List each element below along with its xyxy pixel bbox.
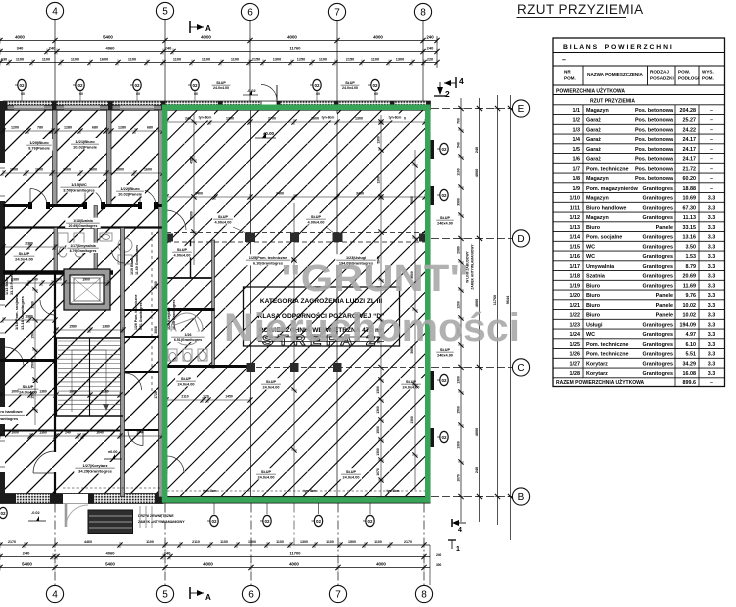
svg-text:1070: 1070 [376, 468, 380, 476]
svg-text:–: – [710, 157, 713, 163]
svg-text:1100: 1100 [128, 58, 136, 62]
svg-text:1280: 1280 [118, 126, 126, 130]
svg-text:1600: 1600 [35, 168, 43, 172]
svg-text:5960: 5960 [190, 211, 194, 219]
svg-text:02: 02 [192, 83, 198, 88]
svg-text:240: 240 [475, 147, 479, 153]
svg-text:540: 540 [457, 142, 461, 148]
svg-text:1/25: 1/25 [570, 342, 581, 348]
svg-text:1/15|WC: 1/15|WC [71, 182, 87, 187]
svg-text:2150: 2150 [346, 58, 354, 62]
svg-text:3.3: 3.3 [708, 322, 716, 328]
svg-text:1600: 1600 [144, 168, 152, 172]
svg-text:Panele: Panele [656, 225, 673, 231]
svg-text:Pos. betonowa: Pos. betonowa [635, 176, 674, 182]
svg-text:4: 4 [52, 589, 58, 600]
svg-text:1500: 1500 [31, 301, 35, 309]
svg-text:1100: 1100 [202, 58, 210, 62]
svg-text:Magazyn: Magazyn [586, 215, 609, 221]
svg-text:1/14: 1/14 [570, 235, 581, 241]
svg-text:Pos. betonowa: Pos. betonowa [635, 108, 674, 114]
svg-text:34.29: 34.29 [683, 361, 697, 367]
svg-text:POM.: POM. [702, 76, 714, 81]
svg-text:60: 60 [21, 92, 25, 96]
svg-text:02: 02 [316, 519, 322, 524]
svg-text:1/13 Biuro: 1/13 Biuro [5, 276, 9, 295]
svg-text:6.10|Granitogres: 6.10|Granitogres [253, 261, 283, 265]
svg-text:ZAMEK ANTYWŁAMANIOWY: ZAMEK ANTYWŁAMANIOWY [471, 244, 475, 290]
svg-text:300: 300 [436, 563, 442, 567]
svg-text:Korytarz: Korytarz [586, 361, 608, 367]
svg-text:4000: 4000 [203, 562, 213, 567]
svg-text:-0.02: -0.02 [247, 89, 256, 93]
svg-text:2360: 2360 [154, 281, 158, 289]
svg-text:1100: 1100 [146, 540, 154, 544]
svg-text:02: 02 [134, 83, 140, 88]
svg-text:B I L A N S P O W I E R Z C: B I L A N S P O W I E R Z C H N I [563, 44, 672, 51]
svg-text:1100: 1100 [173, 58, 181, 62]
svg-text:1580: 1580 [69, 325, 77, 329]
svg-text:Granitogres: Granitogres [642, 283, 673, 289]
svg-text:4000: 4000 [201, 35, 211, 40]
svg-text:3.50: 3.50 [686, 244, 697, 250]
svg-text:Szatnia: Szatnia [586, 274, 606, 280]
svg-text:WC: WC [586, 332, 595, 338]
svg-text:1/23: 1/23 [570, 322, 581, 328]
svg-text:Granitogres: Granitogres [642, 254, 673, 260]
svg-text:3.3: 3.3 [708, 332, 716, 338]
svg-text:RODZAJ: RODZAJ [650, 70, 669, 75]
svg-text:ZAMEK ANTYWŁAMANIOWY: ZAMEK ANTYWŁAMANIOWY [138, 520, 185, 524]
svg-text:8: 8 [421, 589, 427, 600]
svg-text:11.69: 11.69 [683, 283, 696, 289]
svg-text:4: 4 [52, 6, 58, 17]
svg-text:SŁUP: SŁUP [346, 470, 357, 474]
svg-text:1/16: 1/16 [570, 254, 581, 260]
svg-text:–: – [710, 176, 713, 182]
svg-text:1/8: 1/8 [573, 176, 581, 182]
svg-text:4000: 4000 [376, 562, 386, 567]
svg-text:4: 4 [458, 527, 462, 534]
svg-text:16.08: 16.08 [683, 371, 697, 377]
svg-text:1000: 1000 [10, 168, 18, 172]
svg-text:Pos. betonowa: Pos. betonowa [635, 137, 674, 143]
svg-text:3.3: 3.3 [708, 293, 716, 299]
svg-text:SŁUP: SŁUP [261, 470, 272, 474]
svg-text:1250: 1250 [297, 58, 305, 62]
svg-text:D: D [517, 234, 524, 245]
svg-text:60.20: 60.20 [683, 176, 697, 182]
svg-text:1300: 1300 [396, 58, 404, 62]
svg-text:3.3: 3.3 [708, 205, 716, 211]
svg-text:1/26: 1/26 [185, 333, 192, 337]
svg-text:–: – [710, 127, 713, 133]
svg-text:4000: 4000 [475, 428, 479, 436]
svg-text:11.69 Granitogres: 11.69 Granitogres [135, 245, 139, 275]
svg-text:2980: 2980 [457, 246, 461, 254]
svg-text:Magazyn: Magazyn [586, 196, 609, 202]
svg-text:02: 02 [441, 378, 447, 383]
svg-text:11.13: 11.13 [683, 215, 696, 221]
svg-text:700: 700 [457, 118, 461, 124]
svg-text:4000: 4000 [287, 35, 297, 40]
svg-text:4960: 4960 [106, 46, 116, 51]
svg-text:1/28: 1/28 [570, 371, 581, 377]
svg-text:Granitogres: Granitogres [642, 361, 673, 367]
svg-text:Panele: Panele [656, 303, 673, 309]
svg-text:1.53: 1.53 [686, 254, 697, 260]
svg-text:3.3: 3.3 [708, 196, 716, 202]
svg-text:Pos. betonowa: Pos. betonowa [635, 166, 674, 172]
svg-text:5: 5 [162, 6, 168, 17]
svg-text:NR: NR [564, 70, 571, 75]
svg-text:240: 240 [427, 46, 434, 51]
svg-text:204.28: 204.28 [680, 108, 697, 114]
svg-text:Garaż: Garaż [586, 147, 601, 153]
svg-text:60: 60 [374, 92, 378, 96]
svg-text:1500: 1500 [31, 331, 35, 339]
svg-text:7: 7 [335, 589, 341, 600]
svg-text:1280: 1280 [64, 126, 72, 130]
svg-text:Usługi: Usługi [586, 322, 603, 328]
svg-text:24.17: 24.17 [683, 137, 697, 143]
svg-text:5.51: 5.51 [686, 352, 697, 358]
svg-text:1300: 1300 [376, 406, 380, 414]
svg-text:1360: 1360 [39, 431, 47, 435]
svg-text:1/11 Biuro handlowe: 1/11 Biuro handlowe [0, 410, 23, 414]
svg-text:6: 6 [248, 589, 254, 600]
svg-text:Granitogres: Granitogres [642, 196, 673, 202]
svg-text:tyn. 8cm: tyn. 8cm [204, 489, 217, 493]
svg-text:1900: 1900 [82, 278, 90, 282]
svg-text:8.79: 8.79 [686, 264, 697, 270]
svg-text:SŁUP: SŁUP [345, 81, 355, 85]
svg-text:1/26 Pom. techniczne: 1/26 Pom. techniczne [134, 295, 138, 330]
svg-text:3.3: 3.3 [708, 313, 716, 319]
svg-text:1/7: 1/7 [573, 166, 581, 172]
svg-text:1100: 1100 [457, 168, 461, 175]
svg-text:24.0x4.00: 24.0x4.00 [263, 385, 280, 389]
svg-text:240: 240 [164, 551, 171, 556]
svg-text:1/18: 1/18 [570, 274, 581, 280]
svg-text:1/21|Biuro: 1/21|Biuro [75, 139, 95, 144]
svg-text:1/20|Biuro: 1/20|Biuro [29, 140, 49, 145]
svg-text:9.76|Panele: 9.76|Panele [28, 146, 51, 151]
svg-text:1720: 1720 [154, 391, 158, 399]
svg-text:RZUT PRZYZIEMIA: RZUT PRZYZIEMIA [590, 99, 635, 105]
svg-text:5400: 5400 [22, 562, 32, 567]
svg-text:POM.: POM. [564, 76, 576, 81]
svg-text:1200: 1200 [11, 126, 19, 130]
svg-text:24.0x4.00: 24.0x4.00 [15, 257, 34, 262]
svg-text:Granitogres: Granitogres [642, 264, 673, 270]
svg-text:1300: 1300 [376, 448, 380, 456]
svg-text:–: – [710, 147, 713, 153]
svg-text:24.17: 24.17 [683, 147, 697, 153]
svg-text:33.15 Panele: 33.15 Panele [10, 272, 14, 295]
svg-text:20.69: 20.69 [683, 274, 697, 280]
svg-text:10.69: 10.69 [683, 196, 697, 202]
svg-text:2600: 2600 [311, 117, 319, 121]
svg-text:24.0x4.00: 24.0x4.00 [342, 86, 358, 90]
svg-text:24.22: 24.22 [683, 127, 697, 133]
svg-text:220: 220 [427, 58, 433, 62]
svg-text:240: 240 [185, 117, 191, 121]
svg-text:1300: 1300 [226, 117, 234, 121]
svg-text:Pom. socjalne: Pom. socjalne [586, 235, 622, 241]
svg-text:PODŁOGI: PODŁOGI [678, 76, 699, 81]
svg-text:Umywalnia: Umywalnia [586, 264, 615, 270]
svg-text:680: 680 [147, 126, 153, 130]
svg-text:1/22|Biuro: 1/22|Biuro [120, 186, 140, 191]
svg-text:POW.: POW. [678, 70, 690, 75]
svg-text:1/2: 1/2 [573, 118, 581, 124]
svg-text:1/27|Korytarz: 1/27|Korytarz [82, 463, 107, 468]
svg-text:Pom. techniczne: Pom. techniczne [586, 166, 629, 172]
svg-text:240: 240 [475, 467, 479, 473]
svg-text:4000: 4000 [475, 169, 479, 177]
svg-text:240: 240 [23, 551, 30, 556]
svg-text:–: – [710, 166, 713, 172]
svg-text:10.02: 10.02 [683, 313, 697, 319]
svg-text:1100: 1100 [42, 58, 50, 62]
svg-text:3.3: 3.3 [708, 254, 716, 260]
svg-text:60: 60 [316, 92, 320, 96]
svg-text:2150: 2150 [252, 58, 260, 62]
svg-text:RZUT PRZYZIEMIA: RZUT PRZYZIEMIA [517, 2, 644, 17]
svg-text:1000: 1000 [11, 431, 19, 435]
svg-text:Biuro: Biuro [586, 225, 601, 231]
svg-text:11700: 11700 [290, 551, 302, 556]
svg-text:340: 340 [17, 46, 24, 51]
svg-text:SŁUP: SŁUP [440, 216, 451, 220]
svg-text:Panele: Panele [656, 313, 673, 319]
svg-text:5400: 5400 [105, 562, 115, 567]
svg-text:1180: 1180 [101, 390, 108, 394]
svg-text:1/5: 1/5 [573, 147, 581, 153]
svg-text:–: – [710, 108, 713, 114]
svg-text:1300: 1300 [355, 117, 363, 121]
svg-text:4.00x4.00: 4.00x4.00 [174, 253, 191, 257]
svg-text:A: A [205, 593, 211, 602]
svg-text:1/19 Biuro: 1/19 Biuro [130, 257, 134, 275]
svg-text:9644: 9644 [506, 295, 510, 304]
svg-text:21.72: 21.72 [683, 166, 697, 172]
svg-text:02: 02 [441, 435, 447, 440]
svg-text:1600: 1600 [100, 58, 108, 62]
svg-text:1100: 1100 [231, 58, 239, 62]
svg-text:60: 60 [194, 92, 198, 96]
svg-text:Magazyn: Magazyn [586, 108, 609, 114]
svg-text:Pos. betonowa: Pos. betonowa [635, 118, 674, 124]
svg-text:Garaż: Garaż [586, 118, 601, 124]
svg-text:5: 5 [162, 589, 168, 600]
svg-text:Magazyn: Magazyn [586, 176, 609, 182]
svg-text:13.16: 13.16 [683, 235, 697, 241]
svg-text:4: 4 [459, 76, 464, 86]
svg-text:4555: 4555 [190, 156, 194, 164]
svg-text:Panele: Panele [656, 293, 673, 299]
svg-text:2: 2 [445, 89, 450, 99]
svg-text:5955: 5955 [410, 196, 414, 204]
svg-text:1: 1 [456, 546, 460, 553]
svg-text:Pos. betonowa: Pos. betonowa [635, 157, 674, 163]
svg-text:Pom. techniczne: Pom. techniczne [586, 342, 629, 348]
svg-text:Granitogres: Granitogres [642, 322, 673, 328]
svg-text:1/21: 1/21 [570, 303, 581, 309]
svg-text:240: 240 [436, 553, 442, 557]
svg-text:1300: 1300 [273, 58, 281, 62]
svg-text:1/27: 1/27 [570, 361, 581, 367]
svg-text:1100: 1100 [374, 540, 382, 544]
svg-text:Granitogres: Granitogres [642, 371, 673, 377]
svg-text:1100: 1100 [276, 540, 284, 544]
svg-text:1300: 1300 [410, 416, 414, 424]
svg-text:1/17: 1/17 [570, 264, 581, 270]
svg-text:Pos. betonowa: Pos. betonowa [635, 147, 674, 153]
svg-text:3.3: 3.3 [708, 235, 716, 241]
svg-text:Biuro: Biuro [586, 313, 601, 319]
svg-text:7: 7 [334, 7, 340, 18]
svg-text:3.3: 3.3 [708, 264, 716, 270]
svg-text:24.0x4.00: 24.0x4.00 [258, 475, 275, 479]
svg-text:1300: 1300 [377, 176, 381, 184]
svg-text:1/28 Korytarz: 1/28 Korytarz [167, 307, 171, 330]
svg-text:Pom. magazynierów: Pom. magazynierów [586, 186, 639, 192]
svg-text:1/1: 1/1 [573, 108, 581, 114]
svg-text:B: B [518, 492, 525, 503]
svg-text:02: 02 [441, 193, 447, 198]
svg-text:1/9: 1/9 [573, 186, 581, 192]
svg-text:18.88: 18.88 [683, 186, 697, 192]
svg-text:5400: 5400 [103, 35, 113, 40]
svg-text:4000: 4000 [289, 562, 299, 567]
svg-text:4000: 4000 [15, 35, 25, 40]
svg-text:1000: 1000 [116, 168, 124, 172]
svg-text:1300: 1300 [457, 376, 461, 384]
svg-text:24.0x4.00: 24.0x4.00 [343, 475, 360, 479]
svg-text:Granitogres: Granitogres [642, 332, 673, 338]
svg-text:3.3: 3.3 [708, 244, 716, 250]
svg-text:POWIERZCHNIA UŻYTKOWA: POWIERZCHNIA UŻYTKOWA [556, 87, 625, 94]
svg-text:SŁUP: SŁUP [266, 380, 277, 384]
svg-text:NAZWA POMIESZCZENIA: NAZWA POMIESZCZENIA [587, 72, 643, 77]
svg-text:Granitogres: Granitogres [642, 274, 673, 280]
svg-text:SŁUP: SŁUP [19, 251, 30, 256]
svg-text:E: E [518, 104, 525, 115]
svg-text:1100: 1100 [16, 58, 24, 62]
svg-text:2170: 2170 [404, 540, 412, 544]
svg-text:60: 60 [79, 92, 83, 96]
svg-text:1/6: 1/6 [573, 157, 581, 163]
svg-text:8.79|Granitogres: 8.79|Granitogres [70, 249, 97, 253]
svg-text:02: 02 [0, 511, 6, 516]
svg-text:6.51|Granitogres: 6.51|Granitogres [174, 338, 202, 342]
svg-text:Granitogres: Granitogres [642, 205, 673, 211]
svg-text:5.51 Granitogres: 5.51 Granitogres [139, 302, 143, 330]
svg-text:1300: 1300 [376, 386, 380, 394]
svg-text:1500: 1500 [31, 361, 35, 369]
svg-text:Granitogres: Granitogres [642, 352, 673, 358]
svg-text:Granitogres: Granitogres [642, 215, 673, 221]
svg-text:8: 8 [420, 7, 426, 18]
svg-text:1/19: 1/19 [570, 283, 581, 289]
svg-text:10.02|Panele: 10.02|Panele [73, 145, 98, 150]
svg-text:1/20: 1/20 [570, 293, 581, 299]
svg-text:02: 02 [77, 83, 83, 88]
svg-text:240: 240 [65, 431, 71, 435]
svg-text:-0.02: -0.02 [31, 511, 40, 515]
svg-text:SŁUP: SŁUP [218, 215, 229, 219]
svg-text:"GRUNT": "GRUNT" [281, 258, 469, 300]
svg-text:Biuro: Biuro [586, 303, 601, 309]
svg-text:02: 02 [372, 83, 378, 88]
svg-text:SŁUP: SŁUP [311, 215, 322, 219]
svg-text:1/12: 1/12 [570, 215, 581, 221]
svg-text:9.76: 9.76 [686, 293, 697, 299]
svg-text:3.50|Granitogres: 3.50|Granitogres [63, 188, 95, 193]
svg-text:C: C [517, 363, 524, 374]
svg-text:13.16 Granitogres: 13.16 Granitogres [20, 295, 25, 330]
svg-text:3.3: 3.3 [708, 283, 716, 289]
svg-text:Garaż: Garaż [586, 137, 601, 143]
svg-text:25.27: 25.27 [683, 118, 697, 124]
svg-text:2700: 2700 [268, 117, 276, 121]
svg-text:1360: 1360 [39, 390, 47, 394]
svg-text:Biuro: Biuro [586, 293, 601, 299]
svg-text:±0.00: ±0.00 [263, 131, 275, 136]
svg-text:RAZEM POWIERZCHNIA UŻYTKOWA: RAZEM POWIERZCHNIA UŻYTKOWA [556, 379, 645, 386]
svg-text:WC: WC [586, 254, 595, 260]
svg-text:2170: 2170 [8, 540, 16, 544]
svg-text:02: 02 [314, 83, 320, 88]
svg-text:60: 60 [136, 92, 140, 96]
svg-text:120: 120 [203, 395, 209, 399]
svg-text:1/15: 1/15 [570, 244, 581, 250]
svg-text:2380: 2380 [25, 242, 33, 246]
svg-text:–: – [710, 137, 713, 143]
svg-text:WYS.: WYS. [702, 70, 714, 75]
svg-text:–: – [710, 118, 713, 124]
svg-text:10.02|Panele: 10.02|Panele [118, 192, 143, 197]
svg-text:1100: 1100 [326, 540, 334, 544]
svg-text:24.17: 24.17 [683, 157, 697, 163]
svg-text:1070: 1070 [457, 474, 461, 482]
svg-text:02: 02 [19, 83, 25, 88]
svg-text:4460: 4460 [84, 540, 92, 544]
svg-text:3400: 3400 [195, 192, 203, 196]
svg-text:240x4.00: 240x4.00 [437, 221, 453, 225]
svg-text:4.00x4.00: 4.00x4.00 [215, 220, 232, 224]
svg-text:Biuro: Biuro [586, 283, 601, 289]
svg-text:1/10: 1/10 [570, 196, 581, 202]
svg-text:tyn-8cm: tyn-8cm [389, 116, 402, 120]
svg-text:3.3: 3.3 [708, 352, 716, 358]
svg-text:11760: 11760 [290, 46, 302, 51]
svg-text:1300: 1300 [377, 136, 381, 144]
svg-text:3.3: 3.3 [708, 303, 716, 309]
svg-text:1640: 1640 [96, 431, 104, 435]
svg-text:6: 6 [247, 7, 253, 18]
svg-text:Granitogres: Granitogres [642, 342, 673, 348]
svg-text:SŁUP: SŁUP [177, 248, 188, 252]
svg-text:10.02: 10.02 [683, 303, 697, 309]
svg-text:1/26: 1/26 [570, 352, 581, 358]
svg-text:3400: 3400 [276, 192, 284, 196]
svg-text:1/4: 1/4 [573, 137, 581, 143]
svg-text:1/11: 1/11 [570, 205, 580, 211]
svg-text:1/17|Umywalnia: 1/17|Umywalnia [70, 244, 95, 248]
